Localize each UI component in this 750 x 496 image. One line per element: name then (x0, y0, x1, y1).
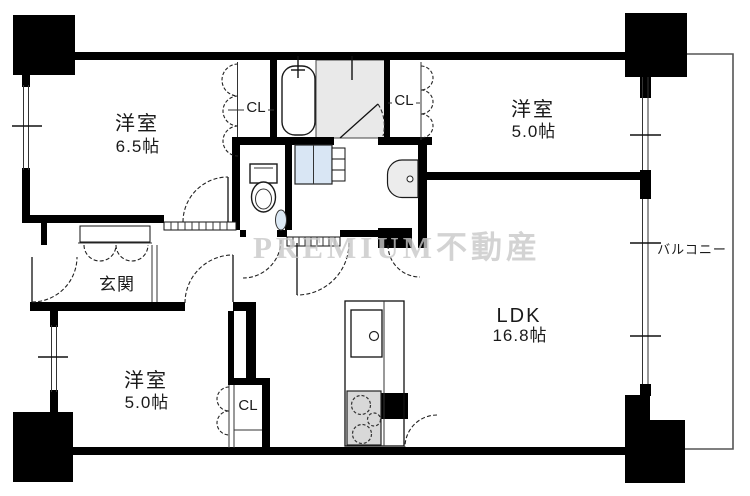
wall-bedroom-tr-bottom (425, 172, 647, 180)
stove (347, 391, 381, 445)
floorplan-svg: バルコニー (0, 0, 750, 496)
entrance-area: 玄関 (32, 226, 157, 302)
balcony: バルコニー (657, 54, 733, 449)
bedroom-tr-name: 洋室 (511, 98, 555, 121)
wall-cl-bottom-right (262, 378, 270, 450)
watermark: PREMIUM不動産 (253, 230, 541, 265)
shoe-cabinet-door-arc (84, 245, 116, 261)
washer-pan (295, 145, 345, 184)
closet-b-label: CL (238, 397, 257, 414)
pillar-bottom-left (13, 412, 73, 482)
wall-tub-cl-divider (270, 60, 277, 140)
bedroom-bl-name: 洋室 (124, 369, 168, 392)
wall-hall-ldk (246, 302, 256, 380)
wall-entrance-bottom (30, 302, 185, 311)
wall-toilet-left (232, 137, 240, 230)
bedroom-bl-size: 5.0帖 (125, 393, 170, 412)
faucet (370, 332, 379, 341)
entrance-door-arc (32, 257, 77, 302)
entrance-label: 玄関 (99, 275, 135, 294)
kitchen-counter (345, 301, 404, 446)
wall-bathrow-left (232, 137, 334, 145)
shower-room (316, 60, 385, 138)
toilet (250, 164, 277, 212)
shoe-cabinet (80, 226, 150, 242)
wall-top (75, 52, 625, 60)
bedroom-tr-size: 5.0帖 (512, 122, 557, 141)
pillar-top-right (625, 13, 687, 77)
ldk-size: 16.8帖 (492, 326, 547, 345)
wall-bath-cl-divider (384, 60, 390, 140)
floorplan-canvas: バルコニー (0, 0, 750, 496)
wall-left-lower-b (50, 390, 58, 447)
wall-right-stub-bottom (640, 384, 651, 396)
wall-bedroom-bl-right (228, 311, 234, 380)
washbasin (388, 160, 419, 198)
door-arc-bedroom-bl (185, 255, 233, 303)
wall-right-stub-top (640, 77, 651, 98)
shoe-cabinet-door-arc (116, 245, 148, 261)
wall-left-upper-b (22, 168, 30, 222)
wall-left-upper-a (22, 60, 30, 87)
pillar-bottom-right (625, 395, 685, 483)
closet-tl-label: CL (246, 99, 265, 116)
wall-bottom (73, 447, 625, 455)
bedroom-tl-size: 6.5帖 (116, 137, 161, 156)
closet-tr-label: CL (394, 92, 413, 109)
door-arc-kitchen (405, 415, 437, 447)
corner-basin (276, 210, 287, 230)
door-arc-bedroom65 (183, 177, 228, 222)
bathtub (282, 56, 315, 135)
balcony-label: バルコニー (657, 242, 727, 257)
bedroom-tl-name: 洋室 (115, 112, 159, 135)
wall-door-stub (233, 302, 256, 311)
wall-entrance-left (41, 215, 47, 245)
ldk-name: LDK (497, 305, 542, 327)
wall-left-lower-a (50, 311, 58, 327)
wall-hall-a (240, 230, 246, 237)
